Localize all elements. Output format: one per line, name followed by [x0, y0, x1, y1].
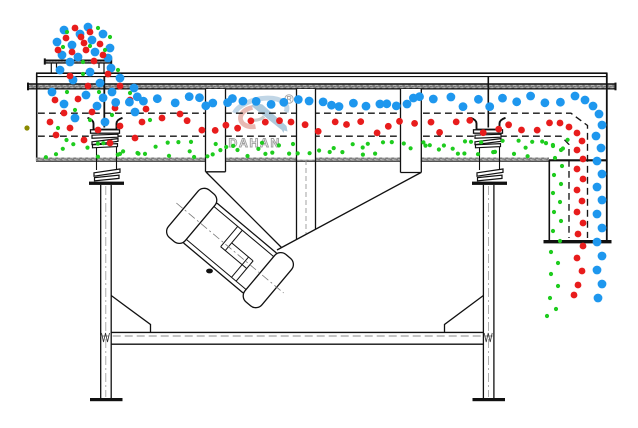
svg-text:DAHAN: DAHAN	[229, 136, 282, 150]
